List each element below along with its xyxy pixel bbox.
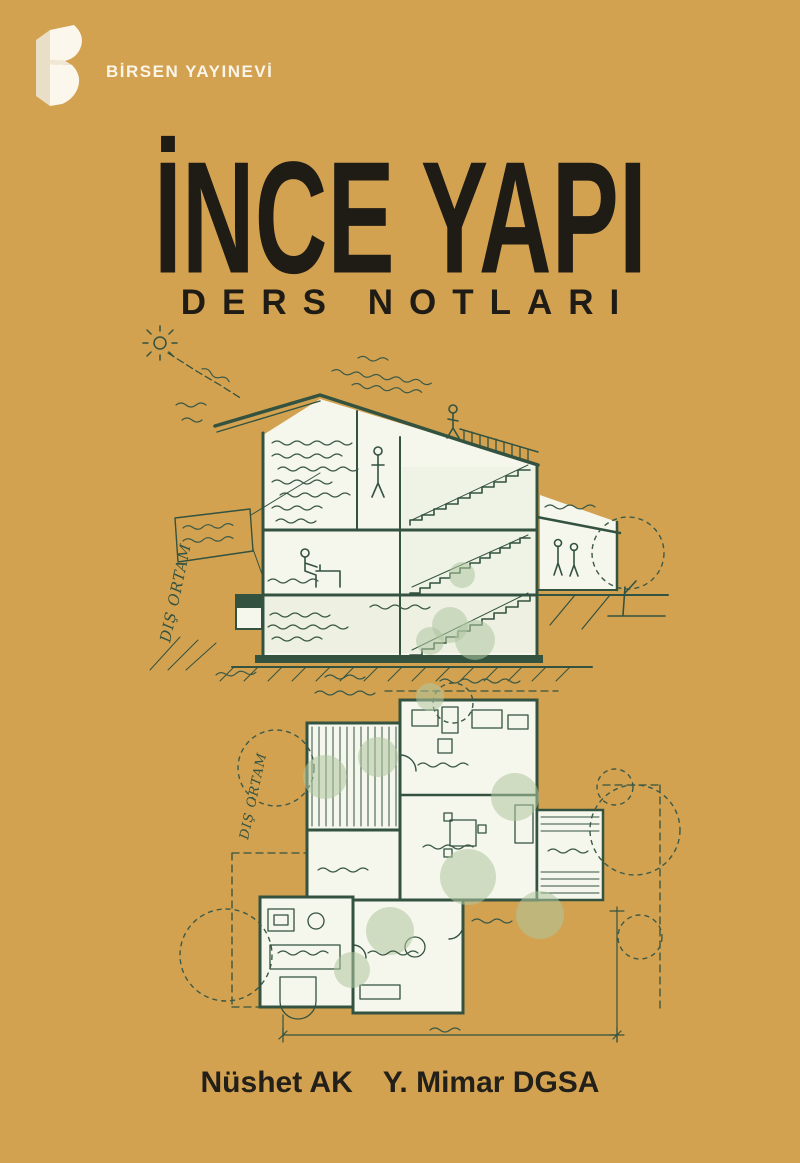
cover-artwork: DIŞ ORTAM [120, 325, 700, 1055]
title-block: İNCE YAPI [0, 138, 800, 278]
author-line: Nüshet AKY. Mimar DGSA [0, 1066, 800, 1100]
publisher-name: BİRSEN YAYINEVİ [106, 62, 273, 82]
author-credential: Y. Mimar DGSA [383, 1066, 600, 1099]
plan-side-label: DIŞ ORTAM [237, 751, 270, 842]
publisher-brand: BİRSEN YAYINEVİ [20, 16, 273, 116]
person-on-roof [447, 405, 459, 438]
birsen-3d-b-logo-icon [20, 16, 100, 116]
subtitle-block: DERS NOTLARI [0, 282, 800, 324]
floor-plan-drawing: DIŞ ORTAM [180, 683, 680, 1042]
book-subtitle: DERS NOTLARI [165, 282, 636, 324]
book-cover: BİRSEN YAYINEVİ İNCE YAPI DERS NOTLARI [0, 0, 800, 1163]
author-name: Nüshet AK [201, 1066, 353, 1099]
section-side-label: DIŞ ORTAM [156, 542, 195, 645]
building-section-drawing: DIŞ ORTAM [143, 326, 668, 683]
book-title: İNCE YAPI [153, 138, 646, 298]
